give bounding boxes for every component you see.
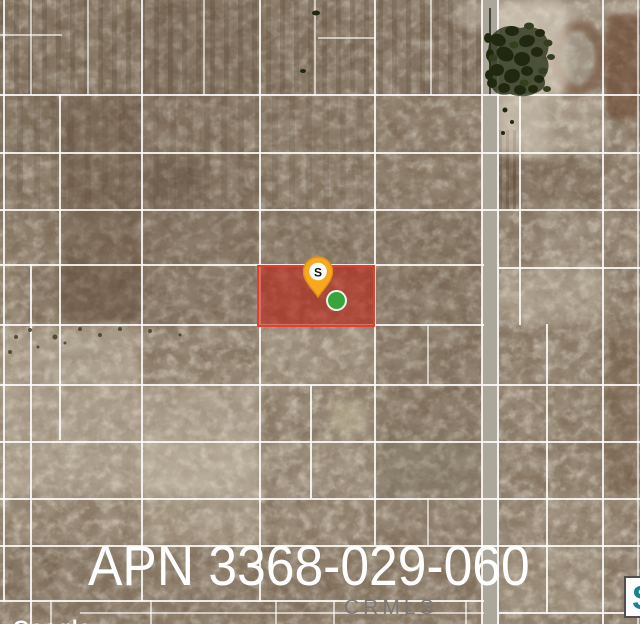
svg-text:S: S	[314, 265, 322, 279]
